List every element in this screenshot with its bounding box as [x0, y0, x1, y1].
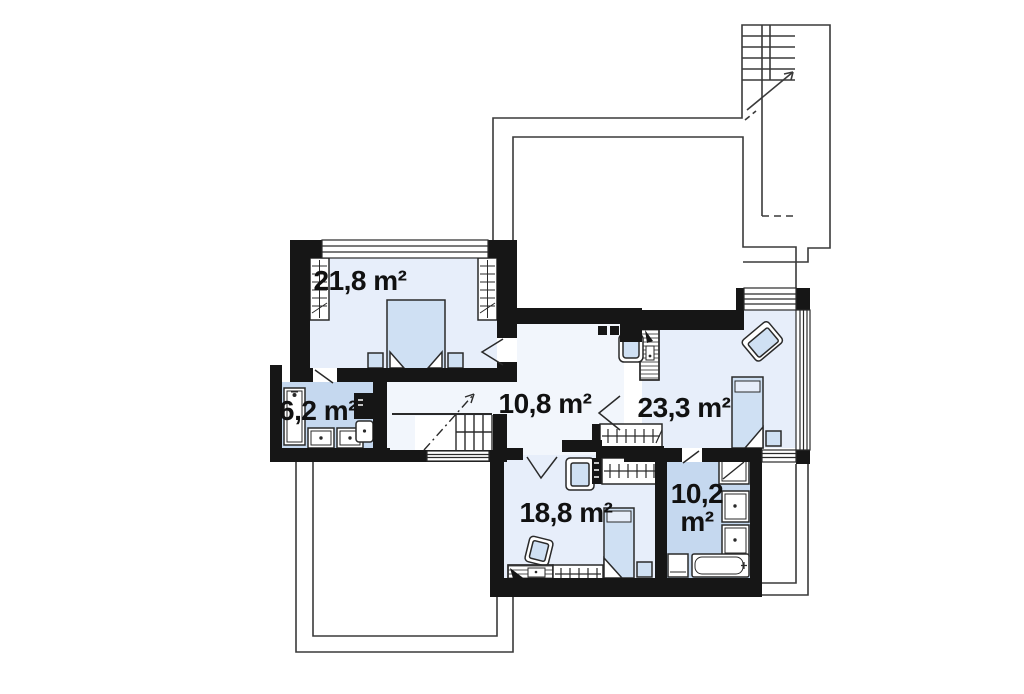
washbasin-2 — [722, 525, 749, 556]
window-bedroom-right-top — [744, 288, 796, 310]
label-bedroom-bottom: 18,8 m² — [520, 497, 613, 528]
window-bathroom-right-top — [762, 450, 796, 462]
built-in-wardrobe-upper — [600, 424, 662, 448]
wall — [337, 368, 517, 382]
window-bedroom-top-left — [322, 240, 488, 258]
wall — [270, 448, 390, 462]
double-bed — [387, 300, 445, 370]
washbasin-1 — [308, 428, 334, 448]
washbasin-1 — [722, 491, 749, 522]
roof-void-inner-line — [513, 137, 796, 288]
nightstand — [637, 562, 652, 577]
label-bedroom-top-left: 21,8 m² — [314, 265, 407, 296]
nightstand-right — [448, 353, 463, 368]
wall — [502, 308, 624, 324]
cistern — [354, 393, 376, 419]
wall — [655, 450, 667, 578]
wall — [796, 288, 810, 310]
shelf-box — [592, 458, 602, 484]
terrace-outer-line — [296, 462, 513, 652]
wall — [290, 240, 310, 382]
nightstand-left — [368, 353, 383, 368]
wall — [796, 450, 810, 464]
toilet — [668, 554, 688, 577]
floor-plan-drawing: 21,8 m² 6,2 m² 10,8 m² 23,3 m² 18,8 m² 1… — [0, 0, 1024, 694]
label-bathroom-right-unit: m² — [680, 506, 713, 537]
label-bathroom-right-value: 10,2 — [671, 478, 724, 509]
external-staircase — [742, 25, 795, 120]
toilet-with-cistern — [354, 393, 376, 442]
wall — [750, 450, 762, 595]
armchair-top — [566, 458, 594, 490]
desk-monitor — [646, 346, 654, 360]
window-stair-landing — [427, 451, 489, 461]
wall — [290, 368, 313, 382]
terrace-inner-line — [313, 462, 497, 636]
label-bedroom-right: 23,3 m² — [638, 392, 731, 423]
wardrobe-right — [478, 258, 497, 320]
wall — [490, 578, 762, 597]
bathtub — [692, 554, 749, 577]
eaves-bottom-right-line — [762, 464, 808, 595]
stair-opening-floor — [415, 416, 493, 450]
label-hallway: 10,8 m² — [499, 388, 592, 419]
door-bathroom-left — [315, 370, 333, 383]
label-bathroom-left: 6,2 m² — [279, 395, 357, 426]
wall — [596, 446, 664, 458]
wall — [495, 448, 523, 460]
nightstand — [766, 431, 781, 446]
roof-void-outer-line — [493, 25, 830, 262]
floor-plan-canvas: 21,8 m² 6,2 m² 10,8 m² 23,3 m² 18,8 m² 1… — [0, 0, 1024, 694]
wall — [373, 382, 387, 448]
door-bathroom-right — [683, 451, 699, 463]
wall — [490, 455, 504, 578]
wall — [736, 288, 744, 330]
wall — [562, 440, 602, 452]
window-bedroom-right-side — [796, 310, 810, 450]
wall — [624, 310, 738, 330]
single-bed — [732, 377, 763, 448]
armchair-near-desk — [524, 535, 554, 566]
bed-pillow — [735, 381, 760, 392]
